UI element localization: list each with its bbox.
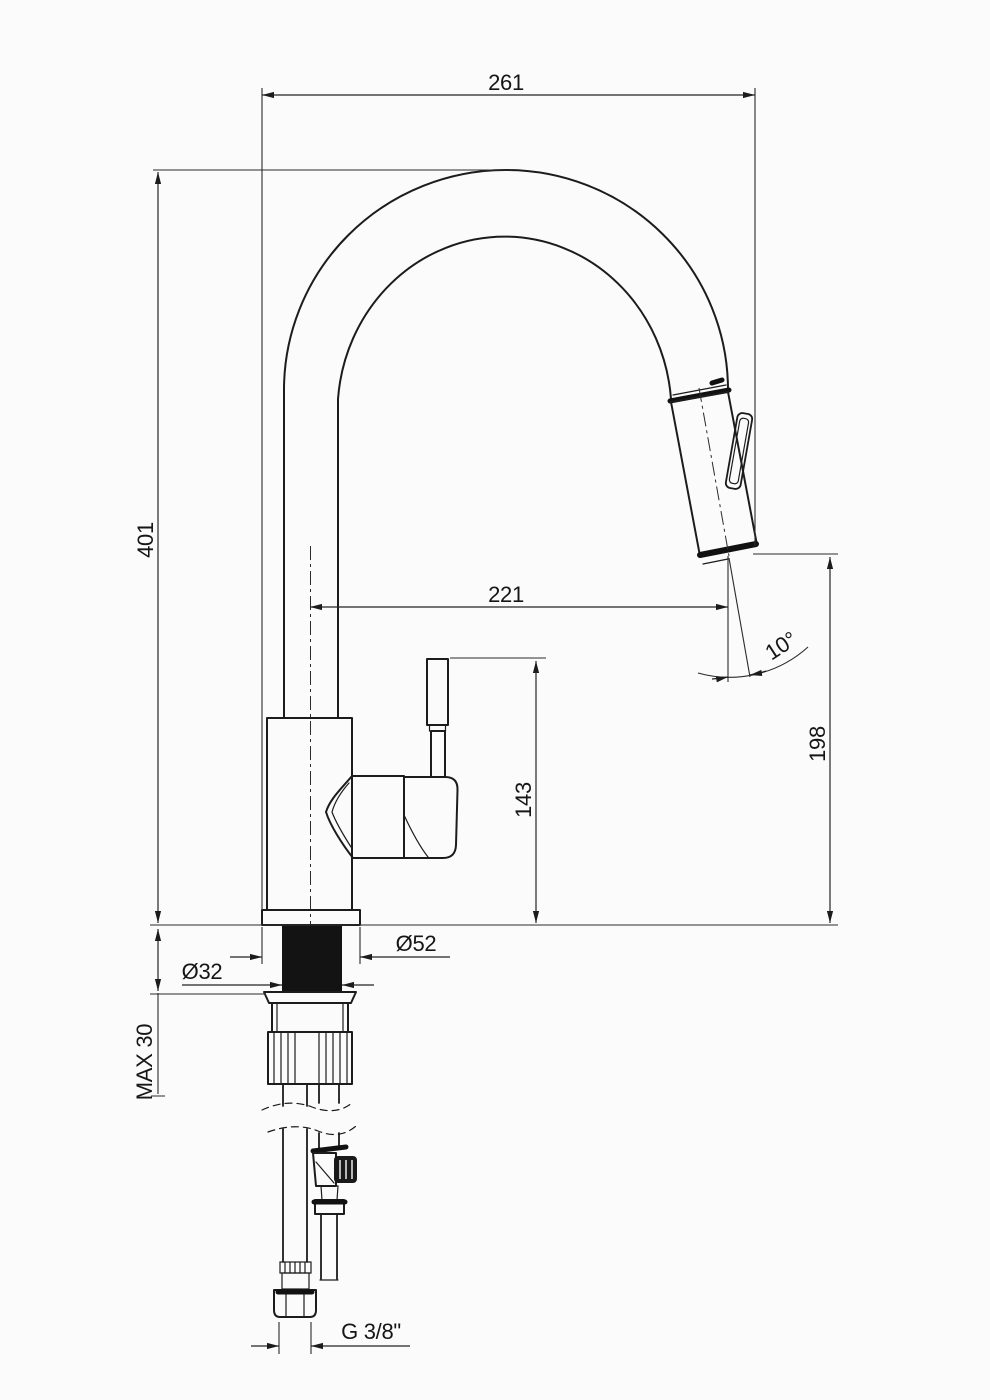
dimension-handle-top-height: 143 — [511, 661, 536, 923]
dim-g38-label: G 3/8" — [341, 1319, 401, 1344]
dim-d52-label: Ø52 — [396, 931, 437, 956]
handle-grip — [404, 777, 458, 858]
dim-143-label: 143 — [511, 782, 536, 818]
dimension-overall-reach: 261 — [262, 70, 755, 95]
aerator-face — [700, 544, 756, 555]
dimension-spray-angle: 10° — [698, 626, 808, 679]
dimension-max-counter-thickness: MAX 30 — [132, 929, 158, 1100]
dimension-supply-thread: G 3/8" — [251, 1319, 410, 1346]
spout-arc-tube — [284, 170, 728, 718]
spray-head-notch — [712, 380, 722, 383]
dimension-center-to-outlet: 221 — [310, 582, 728, 607]
dimension-outlet-height: 198 — [805, 557, 830, 923]
mounting-washer — [264, 992, 356, 1003]
dim-d32-label: Ø32 — [182, 959, 223, 984]
pull-out-spray-head — [670, 380, 757, 564]
dim-max30-label: MAX 30 — [132, 1024, 157, 1101]
faucet-body — [267, 718, 352, 910]
rubber-gasket — [282, 926, 342, 992]
dimension-mounting-hole-diameter: Ø32 — [182, 959, 374, 985]
valve-top-band — [313, 1147, 346, 1151]
mounting-hardware — [264, 992, 356, 1106]
dimension-overall-height: 401 — [133, 172, 158, 923]
flexible-supply-hose — [274, 1129, 316, 1317]
dim-10deg-label: 10° — [761, 626, 802, 665]
lever-handle — [326, 659, 458, 858]
mounting-nut-upper — [272, 1003, 348, 1032]
faucet-technical-drawing: 261 401 MAX 30 221 143 198 10° Ø52 — [0, 0, 990, 1400]
spray-axis-extension — [729, 558, 750, 677]
dim-198-label: 198 — [805, 726, 830, 762]
dim-261-label: 261 — [488, 70, 524, 95]
lever-rod — [427, 659, 448, 725]
break-lines — [262, 1103, 356, 1135]
spray-head-centerline — [699, 388, 729, 556]
extension-lines — [150, 88, 838, 1354]
dim-221-label: 221 — [488, 582, 524, 607]
dim-401-label: 401 — [133, 522, 158, 558]
handle-cone-joint — [326, 776, 404, 858]
rigid-supply-pipe — [313, 1133, 357, 1280]
technical-drawing-page: 261 401 MAX 30 221 143 198 10° Ø52 — [0, 0, 990, 1400]
